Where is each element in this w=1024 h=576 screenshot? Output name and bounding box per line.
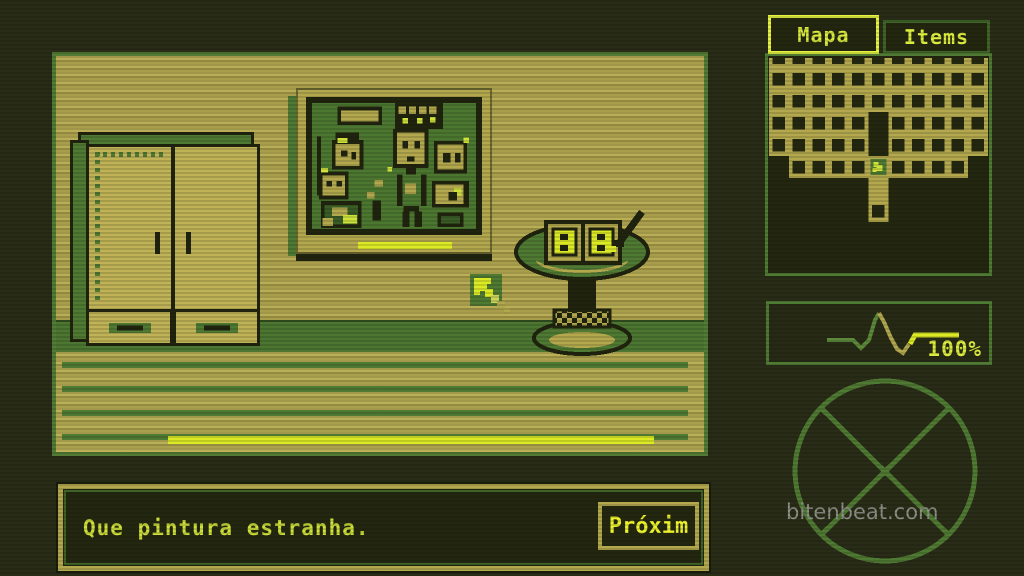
book-icon[interactable] (546, 222, 620, 263)
table-base-top (549, 332, 615, 348)
floor-highlight-bar (168, 436, 654, 444)
table-column (568, 278, 596, 312)
strange-painting[interactable] (288, 88, 492, 262)
pedestal-table[interactable] (512, 208, 660, 360)
wardrobe-doors[interactable] (86, 144, 260, 312)
painting-glint (358, 242, 452, 249)
dialog-box: Que pintura estranha. Próxim (58, 484, 709, 571)
door-trim (95, 152, 165, 157)
door-handle-right (186, 232, 191, 254)
drawer-slot (109, 323, 151, 333)
tab-items-label: Items (904, 25, 969, 49)
table-stem-checker (554, 310, 610, 327)
watermark: bitenbeat.com (786, 500, 939, 524)
floor-map (769, 58, 988, 226)
drawer-right[interactable] (173, 309, 260, 346)
room-floor (56, 352, 704, 452)
tab-mapa-label: Mapa (797, 23, 849, 47)
door-handle-left (155, 232, 160, 254)
health-percentage: 100% (927, 337, 982, 361)
next-button[interactable]: Próxim (598, 502, 699, 550)
health-panel: 100% (766, 301, 992, 365)
game-screen: Mapa Items 100% bitenbeat.com Que pintur… (0, 0, 1024, 576)
drawer-left[interactable] (86, 309, 173, 346)
drawer-slot (196, 323, 238, 333)
next-button-label: Próxim (609, 514, 688, 539)
wardrobe-drawers[interactable] (86, 309, 260, 346)
tab-items[interactable]: Items (883, 20, 990, 54)
painting-canvas (306, 97, 482, 235)
door-trim (95, 152, 100, 303)
door-divider (171, 147, 175, 309)
tab-mapa[interactable]: Mapa (768, 15, 879, 54)
painting-shadow (296, 254, 492, 261)
painting-art (312, 103, 476, 229)
drawer-handle (117, 325, 143, 330)
drawer-handle (204, 325, 230, 330)
wardrobe[interactable] (70, 132, 266, 346)
map-panel (765, 53, 992, 276)
scene-viewport (52, 52, 708, 456)
painting-frame (296, 88, 492, 254)
dialog-text: Que pintura estranha. (83, 516, 370, 540)
cursor-arrow-icon[interactable] (470, 274, 514, 324)
circle-x-icon (787, 377, 983, 567)
